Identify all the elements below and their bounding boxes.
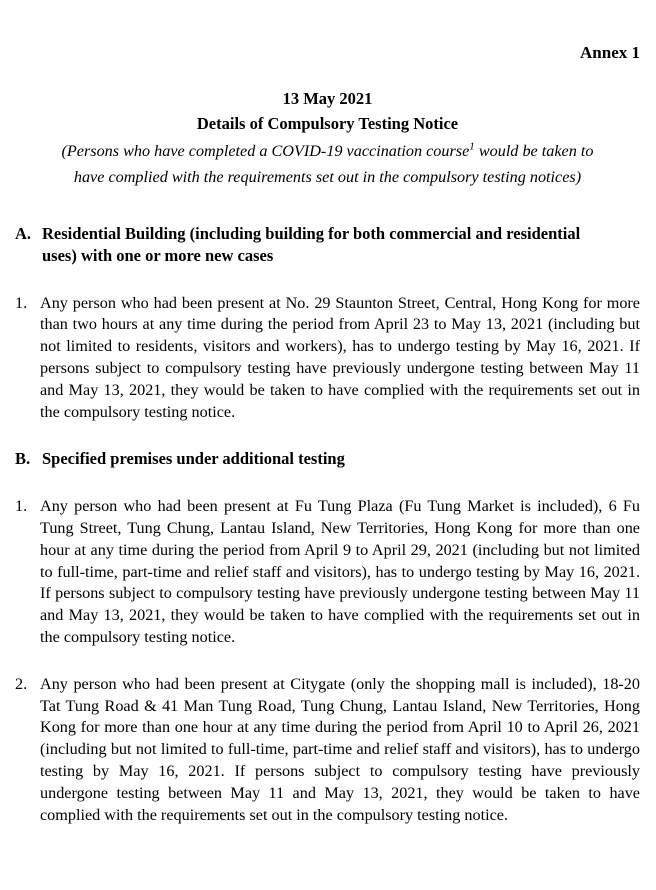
section-b-heading: B. Specified premises under additional t… <box>15 448 640 470</box>
item-number: 1. <box>15 496 40 649</box>
annex-label: Annex 1 <box>15 42 640 64</box>
document-page: Annex 1 13 May 2021 Details of Compulsor… <box>0 0 656 890</box>
section-b-item-1: 1. Any person who had been present at Fu… <box>15 496 640 649</box>
subtitle-line1-after: would be taken to <box>475 142 594 160</box>
section-b-label: B. <box>15 448 42 470</box>
item-text: Any person who had been present at Cityg… <box>40 674 640 827</box>
section-a-item-1: 1. Any person who had been present at No… <box>15 293 640 424</box>
item-text: Any person who had been present at No. 2… <box>40 293 640 424</box>
item-number: 1. <box>15 293 40 424</box>
document-subtitle: (Persons who have completed a COVID-19 v… <box>15 138 640 190</box>
section-a-label: A. <box>15 223 42 267</box>
item-number: 2. <box>15 674 40 827</box>
section-a-heading-text: Residential Building (including building… <box>42 223 640 267</box>
section-b-heading-text: Specified premises under additional test… <box>42 448 640 470</box>
document-title: Details of Compulsory Testing Notice <box>15 113 640 135</box>
section-a-heading: A. Residential Building (including build… <box>15 223 640 267</box>
item-text: Any person who had been present at Fu Tu… <box>40 496 640 649</box>
section-b-item-2: 2. Any person who had been present at Ci… <box>15 674 640 827</box>
document-date: 13 May 2021 <box>15 88 640 110</box>
subtitle-line2: have complied with the requirements set … <box>74 168 581 186</box>
subtitle-line1-before: (Persons who have completed a COVID-19 v… <box>62 142 470 160</box>
